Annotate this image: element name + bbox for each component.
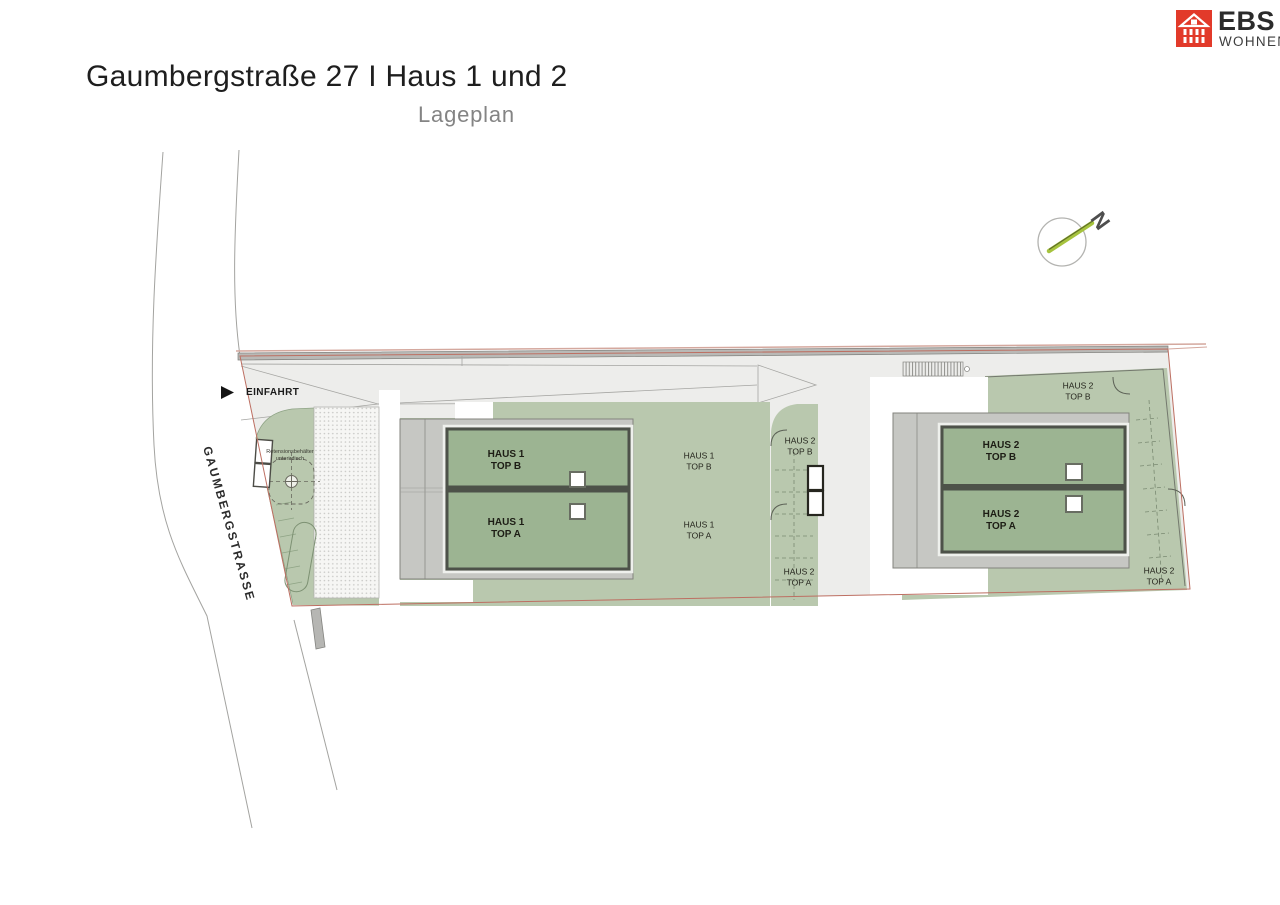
haus1-topb-roof-label: HAUS 1TOP B [488,449,525,473]
haus1-topa-garden-label: HAUS 1TOP A [684,519,715,540]
haus2-topa-south-garden-label: HAUS 2TOP A [1144,565,1175,586]
haus1-topb-garden-label: HAUS 1TOP B [684,450,715,471]
wall-stub [311,608,325,649]
site-plan-drawing [0,0,1280,905]
haus1-topa-roof-label: HAUS 1TOP A [488,517,525,541]
haus2-topa-west-garden-label: HAUS 2TOP A [784,566,815,587]
hatched-strip-end [965,367,970,372]
haus2-party-wall [942,484,1125,491]
haus1-roof [447,429,629,569]
haus1-party-wall [447,486,629,493]
storage-boxes [808,466,823,515]
haus2-building [893,413,1129,568]
haus1-skylight-a [570,504,585,519]
utility-boxes [253,439,272,487]
haus2-topb-west-garden-label: HAUS 2TOP B [785,435,816,456]
haus2-skylight-b [1066,464,1082,480]
retention-label: Retensionsbehälter unterirdisch [266,449,313,463]
gravel-dots [314,407,379,598]
haus2-skylight-a [1066,496,1082,512]
compass-icon [1038,218,1092,266]
entrance-arrow-icon [221,386,234,399]
boundary-extension [1168,347,1207,349]
haus1-building [400,419,633,579]
haus2-topa-roof-label: HAUS 2TOP A [983,509,1020,533]
lageplan-page: Gaumbergstraße 27 I Haus 1 und 2 Lagepla… [0,0,1280,905]
hatched-strip [903,362,963,376]
entrance-label: EINFAHRT [246,387,299,398]
haus1-skylight-b [570,472,585,487]
haus2-topb-roof-label: HAUS 2TOP B [983,440,1020,464]
haus2-topb-north-garden-label: HAUS 2TOP B [1063,380,1094,401]
